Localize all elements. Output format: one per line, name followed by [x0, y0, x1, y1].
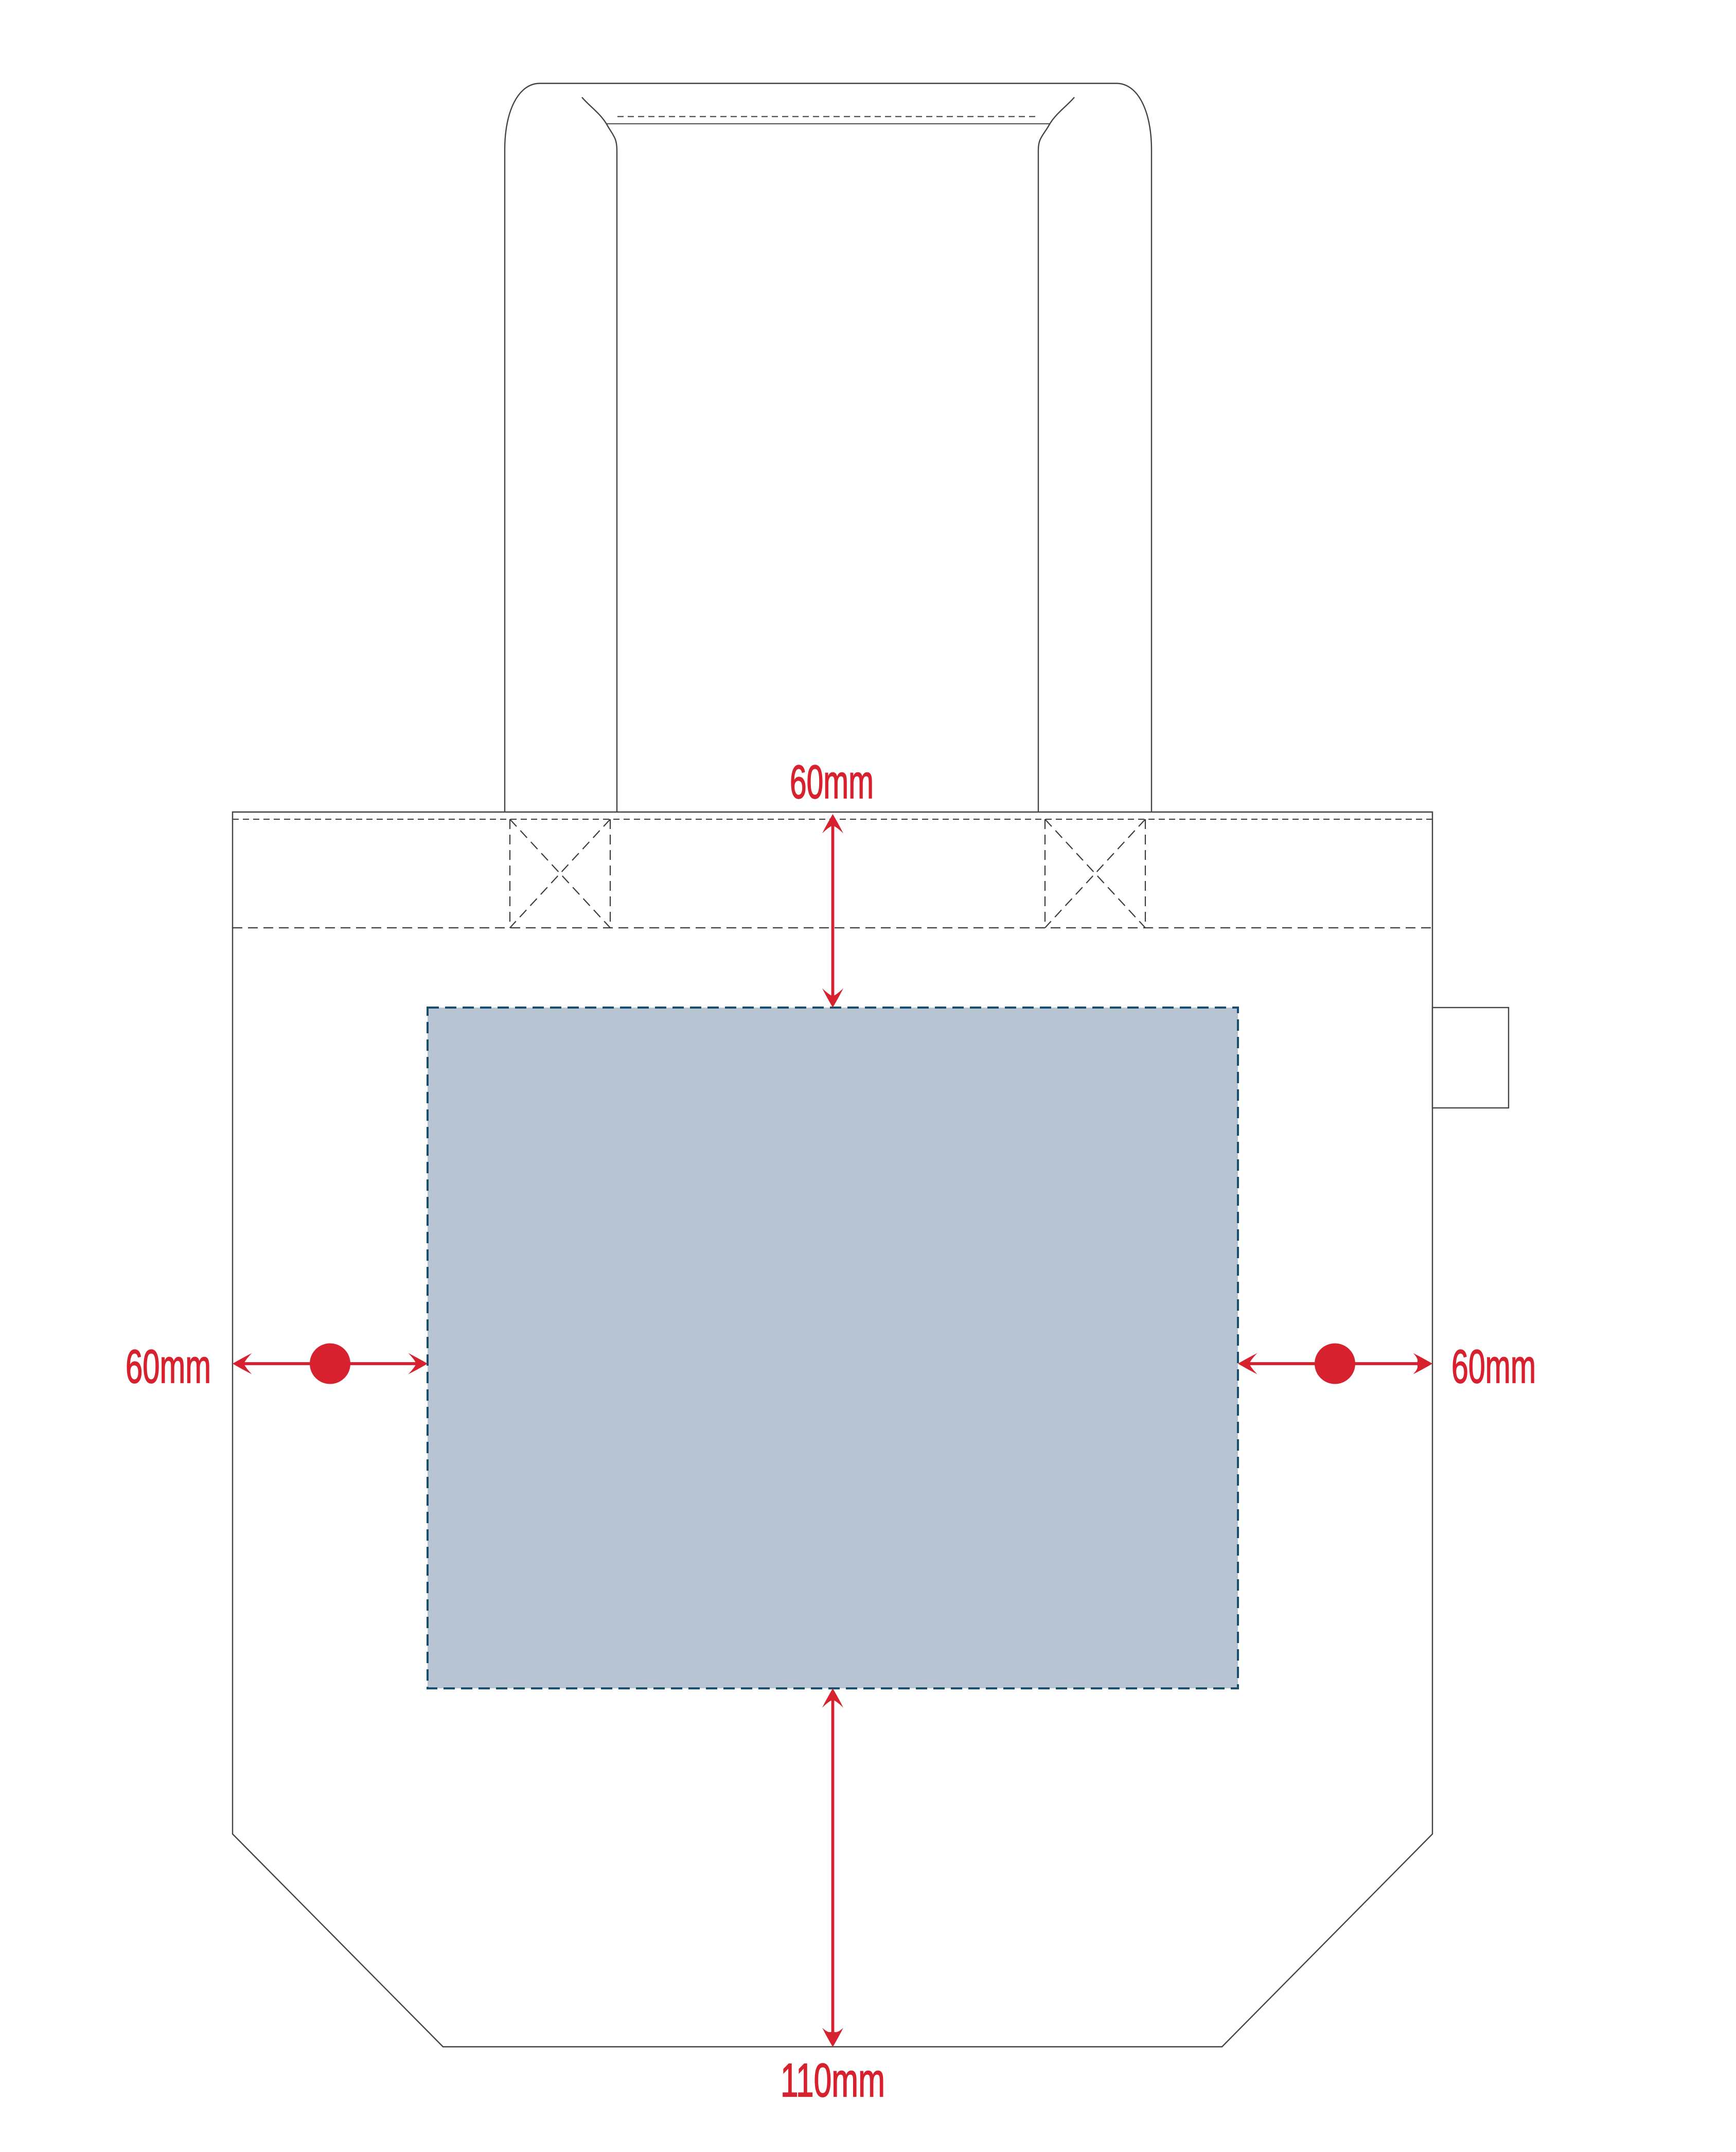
svg-text:60mm: 60mm — [790, 756, 874, 808]
svg-text:60mm: 60mm — [126, 1340, 211, 1393]
svg-text:60mm: 60mm — [1451, 1340, 1536, 1393]
svg-text:110mm: 110mm — [781, 2054, 885, 2107]
